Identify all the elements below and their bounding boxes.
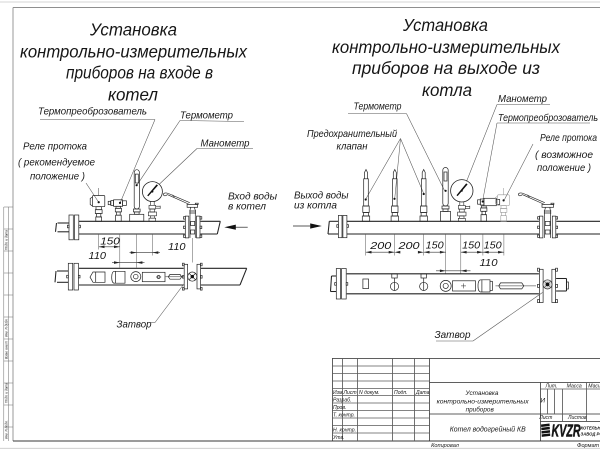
svg-text:Копировал: Копировал: [431, 443, 460, 449]
svg-text:Котел водогрейный КВ: Котел водогрейный КВ: [450, 425, 526, 434]
svg-text:110: 110: [168, 242, 186, 253]
svg-text:Пров.: Пров.: [333, 405, 346, 411]
svg-text:Инв. N дубл.: Инв. N дубл.: [5, 318, 9, 337]
svg-text:Реле протока: Реле протока: [23, 142, 87, 153]
svg-text:150: 150: [426, 241, 444, 252]
svg-text:Термометр: Термометр: [354, 102, 402, 113]
svg-text:положение ): положение ): [537, 163, 591, 174]
svg-text:И: И: [540, 398, 545, 405]
svg-text:110: 110: [480, 258, 498, 269]
svg-text:Предохранительный: Предохранительный: [307, 129, 397, 140]
svg-text:Подп.: Подп.: [394, 390, 408, 396]
svg-text:из котла: из котла: [294, 200, 337, 211]
svg-text:Лист: Лист: [538, 415, 552, 421]
svg-text:контрольно-измерительных: контрольно-измерительных: [20, 42, 248, 62]
svg-text:KVZR: KVZR: [552, 422, 581, 441]
svg-text:Листов: Листов: [567, 415, 587, 421]
svg-text:положение ): положение ): [30, 172, 85, 183]
svg-text:Подп. и дата: Подп. и дата: [5, 230, 9, 250]
svg-text:приборов на выходе из: приборов на выходе из: [352, 58, 540, 78]
svg-text:Установка: Установка: [89, 20, 177, 40]
svg-text:Формат: Формат: [577, 443, 600, 449]
svg-text:Манометр: Манометр: [498, 94, 547, 105]
svg-text:Разраб.: Разраб.: [333, 398, 351, 404]
svg-text:Затвор: Затвор: [117, 320, 152, 331]
svg-text:Изм.: Изм.: [333, 390, 344, 396]
svg-text:200: 200: [369, 241, 392, 252]
svg-text:Взам. инв.N: Взам. инв.N: [5, 341, 9, 359]
svg-text:Масштаб: Масштаб: [588, 384, 600, 390]
svg-text:котел: котел: [108, 85, 158, 105]
svg-text:в котел: в котел: [228, 201, 266, 212]
svg-text:Инв. N подл.: Инв. N подл.: [5, 420, 9, 439]
svg-text:Термометр: Термометр: [180, 111, 233, 122]
svg-text:контрольно-измерительных: контрольно-измерительных: [332, 37, 561, 57]
svg-text:Реле протока: Реле протока: [540, 133, 597, 144]
svg-text:контрольно-измерительных: контрольно-измерительных: [437, 398, 530, 405]
svg-text:Дата: Дата: [415, 390, 430, 396]
svg-text:клапан: клапан: [337, 142, 368, 153]
svg-text:110: 110: [89, 251, 107, 262]
svg-text:Термопреоброзователь: Термопреоброзователь: [38, 106, 147, 118]
svg-text:Манометр: Манометр: [201, 139, 250, 150]
svg-text:Подп. и дата: Подп. и дата: [5, 383, 9, 403]
svg-text:приборов: приборов: [466, 406, 495, 414]
svg-text:ЗАВОД РОССИИ: ЗАВОД РОССИИ: [581, 431, 600, 436]
svg-text:КОТЕЛЬНЫЙ: КОТЕЛЬНЫЙ: [581, 426, 600, 431]
svg-text:200: 200: [397, 241, 420, 252]
svg-text:Затвор: Затвор: [435, 330, 471, 341]
svg-text:( возможное: ( возможное: [535, 150, 593, 161]
svg-text:( рекомендуемое: ( рекомендуемое: [18, 158, 95, 169]
svg-text:котла: котла: [422, 80, 472, 100]
svg-text:150: 150: [484, 241, 502, 252]
svg-text:Установка: Установка: [402, 15, 488, 35]
svg-text:Термопреоброзователь: Термопреоброзователь: [498, 112, 598, 124]
svg-text:N докум.: N докум.: [359, 390, 380, 396]
svg-text:Лист: Лист: [343, 390, 357, 396]
svg-text:Н. контр.: Н. контр.: [333, 428, 356, 434]
svg-text:Т. контр.: Т. контр.: [333, 413, 355, 419]
svg-text:Масса: Масса: [567, 384, 582, 390]
svg-text:150: 150: [462, 241, 480, 252]
svg-text:приборов на входе в: приборов на входе в: [66, 63, 213, 83]
svg-text:Лит.: Лит.: [545, 384, 558, 390]
svg-text:Установка: Установка: [465, 390, 499, 397]
svg-text:Утв.: Утв.: [333, 435, 345, 441]
